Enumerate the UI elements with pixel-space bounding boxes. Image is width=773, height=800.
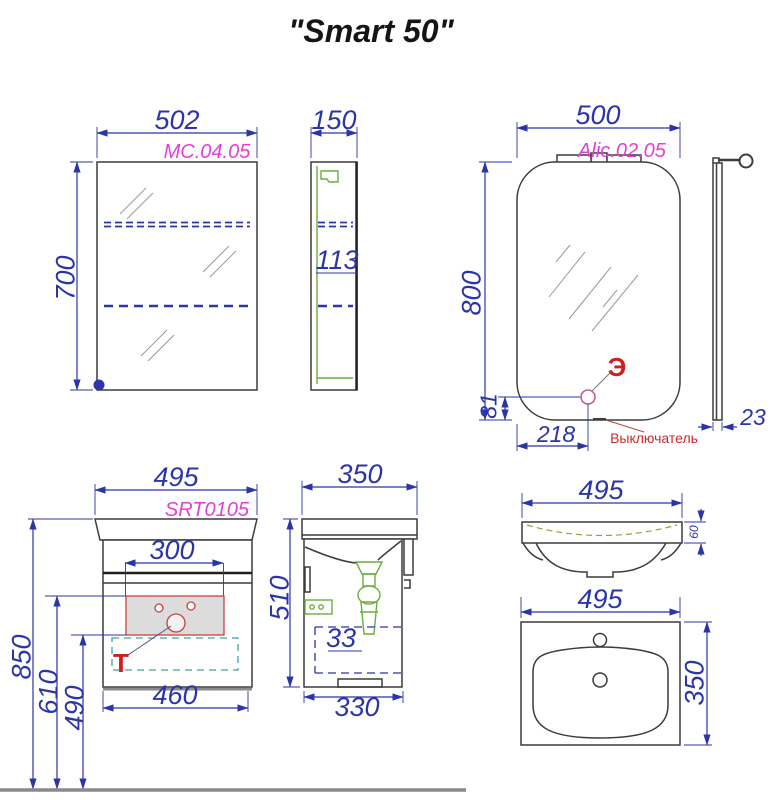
dim-height-850: 850 (6, 519, 93, 789)
dim-height-510: 510 (264, 519, 300, 687)
dim-label: 460 (152, 680, 197, 710)
dim-thickness-23: 23 (698, 404, 766, 431)
dim-label: 150 (311, 105, 356, 135)
view-mirror-cabinet-front: 502 MC.04.05 700 (50, 105, 257, 391)
dim-rim-60: 60 (684, 509, 706, 556)
dim-label: 850 (6, 634, 36, 679)
model-code: SRT0105 (165, 499, 250, 521)
overflow-hole (593, 673, 607, 687)
dim-label: 23 (739, 404, 766, 430)
mount-ring (740, 155, 753, 168)
dim-label: 490 (59, 685, 89, 730)
dim-height-700: 700 (50, 162, 93, 390)
dim-height-800: 800 (456, 162, 512, 420)
dim-body-330: 330 (304, 691, 403, 722)
cabinet-outline (97, 162, 257, 390)
dim-depth-350: 350 (302, 459, 417, 515)
side-outline (311, 162, 357, 390)
page-title: "Smart 50" (288, 13, 454, 49)
fixing-hole-right (187, 602, 195, 610)
model-code: Alic.02.05 (577, 140, 667, 162)
switch-label: Выключатель (610, 430, 698, 446)
drain-hole (167, 614, 185, 632)
view-mirror-front: 500 Alic.02.05 800 Э 81 218 Выключатель (456, 100, 697, 451)
dim-shelf-113: 113 (315, 245, 358, 275)
door-overhang (404, 539, 413, 575)
dim-label: 300 (149, 535, 194, 565)
dim-label: 60 (687, 525, 701, 539)
dim-depth-150: 150 (311, 105, 357, 158)
trap-mark: Т (113, 648, 129, 678)
dim-label: 218 (536, 421, 576, 447)
dim-width-495: 495 (522, 475, 682, 518)
bowl-underside (536, 543, 666, 577)
faucet-hole (594, 634, 607, 647)
dim-label: 81 (475, 393, 501, 419)
mirror-side-bar (713, 163, 722, 420)
dim-label: 502 (154, 105, 199, 135)
dim-label: 800 (456, 270, 486, 315)
drawing-canvas: "Smart 50" 502 MC.04.05 700 (0, 0, 773, 800)
view-sink-front: 495 60 (522, 475, 706, 577)
sink-rim (522, 522, 682, 543)
counter-profile (302, 519, 417, 539)
dim-label: 495 (578, 475, 624, 505)
dim-label: 350 (679, 660, 709, 705)
fixing-hole-left (155, 604, 163, 612)
dim-label: 500 (575, 100, 620, 130)
dim-width-495: 495 (521, 584, 680, 618)
dim-label: 33 (326, 623, 356, 653)
door-knob (94, 380, 105, 391)
view-sink-top: 495 350 (521, 584, 712, 745)
view-vanity-side: 33 350 510 330 (264, 459, 417, 722)
cabinet-side-body (304, 539, 402, 687)
dim-label: 700 (50, 255, 80, 300)
dim-label: 495 (153, 462, 199, 492)
model-code: MC.04.05 (164, 141, 252, 163)
mirror-outline (517, 162, 680, 420)
door-hook (404, 580, 410, 588)
dim-label: 113 (315, 245, 358, 275)
dim-label: 350 (337, 459, 382, 489)
dim-label: 495 (577, 584, 623, 614)
technical-drawing-page: "Smart 50" 502 MC.04.05 700 (0, 0, 773, 800)
view-mirror-cabinet-side: 150 113 (311, 105, 359, 390)
dim-label: 330 (334, 692, 379, 722)
electric-mark: Э (608, 352, 627, 382)
view-mirror-side: 23 (698, 155, 766, 432)
dim-label: 510 (264, 575, 294, 620)
dim-depth-350: 350 (679, 622, 712, 745)
